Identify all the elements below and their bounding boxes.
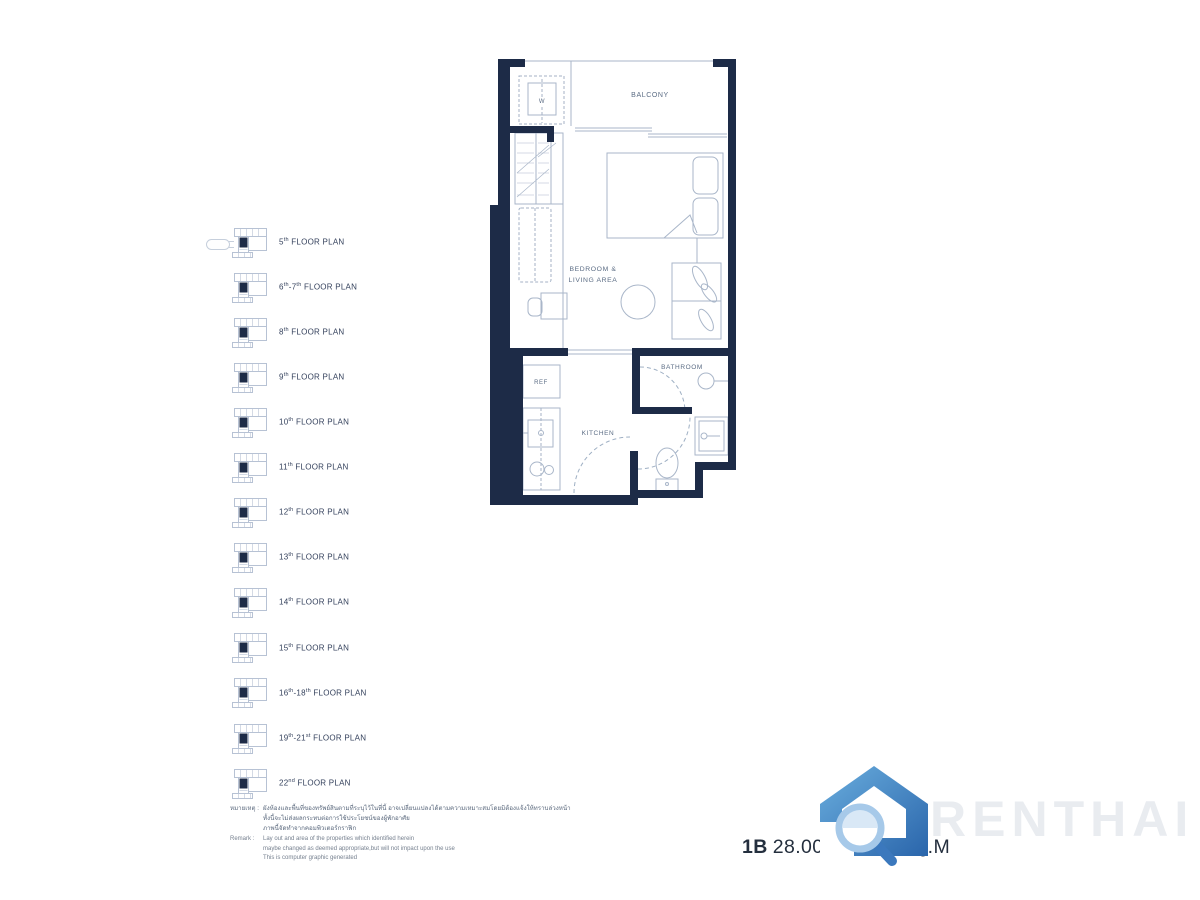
building-footprint-icon <box>204 451 270 483</box>
bathroom-label: BATHROOM <box>661 364 703 371</box>
brand-watermark: RENTHAI <box>808 764 1200 880</box>
floor-plan-list-item[interactable]: 14th FLOOR PLAN <box>204 580 424 625</box>
building-footprint-icon <box>204 722 270 754</box>
floor-plan-list-label: 12th FLOOR PLAN <box>279 507 349 517</box>
building-footprint-icon <box>204 271 270 303</box>
remark-thai: หมายเหตุ : ผังห้องและพื้นที่ของทรัพย์สิน… <box>230 804 550 834</box>
floor-plan-list-label: 14th FLOOR PLAN <box>279 597 349 607</box>
floor-plan-list-item[interactable]: 11th FLOOR PLAN <box>204 444 424 489</box>
remark-english-prefix: Remark : <box>230 835 263 864</box>
unit-area-range: 28.00 - 29.00 SQ.M <box>773 836 950 858</box>
floor-plan-list-item[interactable]: 22nd FLOOR PLAN <box>204 760 424 805</box>
kitchen-label: KITCHEN <box>582 430 615 437</box>
floor-plan-list-item[interactable]: 8th FLOOR PLAN <box>204 309 424 354</box>
floor-plan-list-item[interactable]: 10th FLOOR PLAN <box>204 399 424 444</box>
unit-floor-plan: BALCONY W BEDROOM & LIVING AREA BATHROOM… <box>490 55 740 510</box>
page: { "unit_summary": { "type": "1B", "area_… <box>0 0 1200 900</box>
unit-summary: 1B28.00 - 29.00 SQ.M <box>742 836 950 859</box>
fridge-label: REF <box>534 380 548 386</box>
floor-plan-list-label: 6th-7th FLOOR PLAN <box>279 282 357 292</box>
building-footprint-icon <box>204 316 270 348</box>
floor-plan-list-label: 16th-18th FLOOR PLAN <box>279 688 367 698</box>
building-footprint-icon <box>204 631 270 663</box>
building-footprint-icon <box>204 361 270 393</box>
floor-plan-list: 5th FLOOR PLAN 6th-7th FLOOR PLAN <box>204 219 424 805</box>
floor-plan-list-label: 19th-21st FLOOR PLAN <box>279 733 366 743</box>
floor-plan-list-item[interactable]: 13th FLOOR PLAN <box>204 535 424 580</box>
floor-plan-list-item[interactable]: 5th FLOOR PLAN <box>204 219 424 264</box>
building-footprint-icon <box>204 541 270 573</box>
remark-thai-line: ภาพนี้จัดทำจากคอมพิวเตอร์กราฟิก <box>263 824 571 834</box>
floor-plan-list-item[interactable]: 16th-18th FLOOR PLAN <box>204 670 424 715</box>
remark-thai-line: ทั้งนี้จะไม่ส่งผลกระทบต่อการใช้ประโยชน์ข… <box>263 814 571 824</box>
building-footprint-icon <box>204 496 270 528</box>
floor-plan-list-label: 22nd FLOOR PLAN <box>279 778 351 788</box>
bedroom-label-line2: LIVING AREA <box>569 277 618 284</box>
remark-english-line: Lay out and area of the properties which… <box>263 835 455 845</box>
building-footprint-icon <box>204 767 270 799</box>
floor-plan-list-label: 11th FLOOR PLAN <box>279 462 349 472</box>
floor-plan-list-label: 10th FLOOR PLAN <box>279 417 349 427</box>
floor-plan-list-label: 8th FLOOR PLAN <box>279 327 344 337</box>
floor-plan-list-item[interactable]: 12th FLOOR PLAN <box>204 490 424 535</box>
building-footprint-icon <box>204 586 270 618</box>
floor-plan-list-item[interactable]: 6th-7th FLOOR PLAN <box>204 264 424 309</box>
remarks-block: หมายเหตุ : ผังห้องและพื้นที่ของทรัพย์สิน… <box>230 804 550 864</box>
floor-plan-list-item[interactable]: 15th FLOOR PLAN <box>204 625 424 670</box>
floor-plan-list-label: 5th FLOOR PLAN <box>279 237 344 247</box>
washer-label: W <box>539 99 545 105</box>
building-footprint-icon <box>204 226 270 258</box>
remark-thai-prefix: หมายเหตุ : <box>230 804 263 834</box>
building-footprint-icon <box>204 676 270 708</box>
balcony-label: BALCONY <box>631 92 669 99</box>
remark-english: Remark : Lay out and area of the propert… <box>230 835 550 864</box>
floor-plan-list-label: 13th FLOOR PLAN <box>279 552 349 562</box>
bedroom-label-line1: BEDROOM & <box>570 266 617 273</box>
floor-plan-list-item[interactable]: 9th FLOOR PLAN <box>204 354 424 399</box>
unit-type-label: 1B <box>742 836 768 858</box>
floor-plan-list-label: 15th FLOOR PLAN <box>279 643 349 653</box>
brand-watermark-text: RENTHAI <box>930 790 1194 848</box>
floor-plan-list-label: 9th FLOOR PLAN <box>279 372 344 382</box>
remark-english-line: This is computer graphic generated <box>263 854 455 864</box>
floor-plan-list-item[interactable]: 19th-21st FLOOR PLAN <box>204 715 424 760</box>
unit-plan-drawing: BALCONY W BEDROOM & LIVING AREA BATHROOM… <box>490 55 740 510</box>
remark-english-line: maybe changed as deemed appropriate,but … <box>263 845 455 855</box>
remark-thai-line: ผังห้องและพื้นที่ของทรัพย์สินตามที่ระบุไ… <box>263 804 571 814</box>
building-footprint-icon <box>204 406 270 438</box>
podium-extension-outline <box>207 239 235 249</box>
